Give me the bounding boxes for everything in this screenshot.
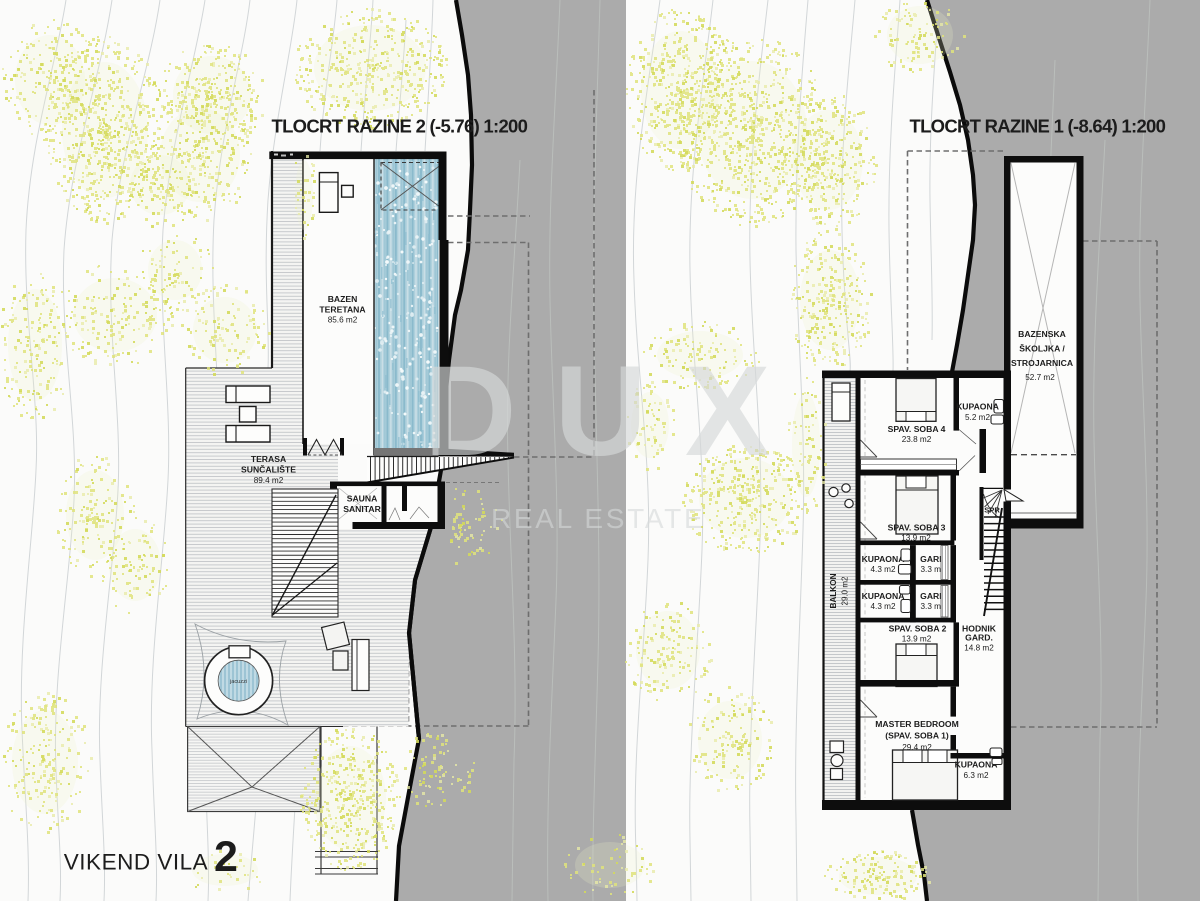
- svg-text:DUX: DUX: [424, 340, 808, 483]
- svg-text:TERASA: TERASA: [251, 454, 286, 464]
- svg-text:jacuzzi: jacuzzi: [229, 679, 247, 685]
- svg-text:BALKON: BALKON: [829, 573, 838, 608]
- svg-text:GARD.: GARD.: [965, 633, 993, 643]
- svg-text:SUNČALIŠTE: SUNČALIŠTE: [241, 464, 296, 475]
- svg-text:STROJARNICA: STROJARNICA: [1011, 358, 1073, 368]
- svg-text:85.6 m2: 85.6 m2: [328, 316, 358, 325]
- svg-text:13.9 m2: 13.9 m2: [902, 635, 932, 644]
- svg-text:4.3 m2: 4.3 m2: [870, 565, 895, 574]
- svg-text:BAZEN: BAZEN: [328, 294, 358, 304]
- svg-text:5.2 m2: 5.2 m2: [965, 413, 990, 422]
- svg-text:SPAV. SOBA 4: SPAV. SOBA 4: [888, 424, 946, 434]
- svg-text:52.7 m2: 52.7 m2: [1025, 373, 1055, 382]
- svg-text:SPAV. SOBA 2: SPAV. SOBA 2: [889, 624, 947, 634]
- svg-text:KUPAONA: KUPAONA: [862, 591, 905, 601]
- svg-text:VIKEND VILA: VIKEND VILA: [64, 850, 208, 875]
- svg-text:MASTER BEDROOM: MASTER BEDROOM: [875, 719, 959, 729]
- svg-text:REAL ESTATE: REAL ESTATE: [491, 503, 705, 534]
- svg-text:SPAV. SOBA 3: SPAV. SOBA 3: [888, 523, 946, 533]
- svg-text:KUPAONA: KUPAONA: [862, 554, 905, 564]
- svg-text:4.3 m2: 4.3 m2: [870, 602, 895, 611]
- svg-text:89.4 m2: 89.4 m2: [254, 476, 284, 485]
- svg-text:TERETANA: TERETANA: [319, 305, 365, 315]
- svg-text:(SPAV. SOBA 1): (SPAV. SOBA 1): [885, 731, 949, 741]
- svg-text:SAUNA: SAUNA: [347, 494, 378, 504]
- svg-text:KUPAONA: KUPAONA: [956, 402, 999, 412]
- svg-text:SPR: SPR: [984, 506, 1000, 515]
- svg-text:6.3 m2: 6.3 m2: [963, 771, 988, 780]
- svg-text:29.0 m2: 29.0 m2: [841, 576, 850, 605]
- svg-text:TLOCRT RAZINE 1 (-8.64) 1:200: TLOCRT RAZINE 1 (-8.64) 1:200: [910, 116, 1166, 137]
- svg-text:SANITAR: SANITAR: [343, 504, 381, 514]
- svg-text:TLOCRT RAZINE 2 (-5.76) 1:200: TLOCRT RAZINE 2 (-5.76) 1:200: [272, 116, 528, 137]
- svg-text:2: 2: [214, 833, 238, 881]
- svg-text:ŠKOLJKA /: ŠKOLJKA /: [1019, 343, 1065, 354]
- svg-text:14.8 m2: 14.8 m2: [964, 644, 994, 653]
- svg-text:23.8 m2: 23.8 m2: [902, 435, 932, 444]
- svg-text:BAZENSKA: BAZENSKA: [1018, 329, 1066, 339]
- svg-text:KUPAONA: KUPAONA: [955, 760, 998, 770]
